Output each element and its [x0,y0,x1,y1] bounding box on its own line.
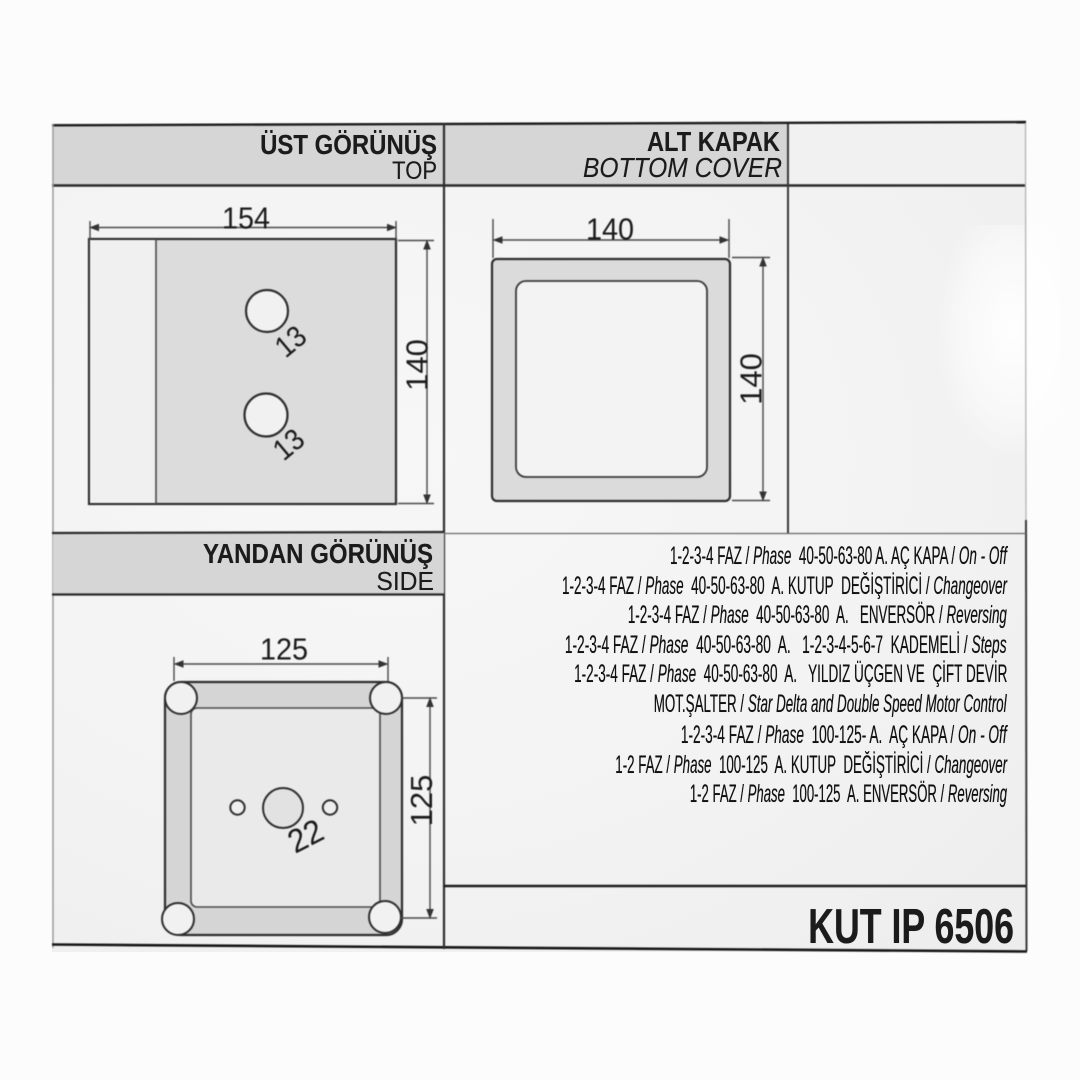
svg-text:125: 125 [260,632,308,666]
svg-text:140: 140 [734,353,769,405]
svg-text:125: 125 [404,775,439,827]
svg-text:154: 154 [222,201,270,235]
svg-text:140: 140 [586,212,634,246]
svg-text:140: 140 [400,339,435,391]
